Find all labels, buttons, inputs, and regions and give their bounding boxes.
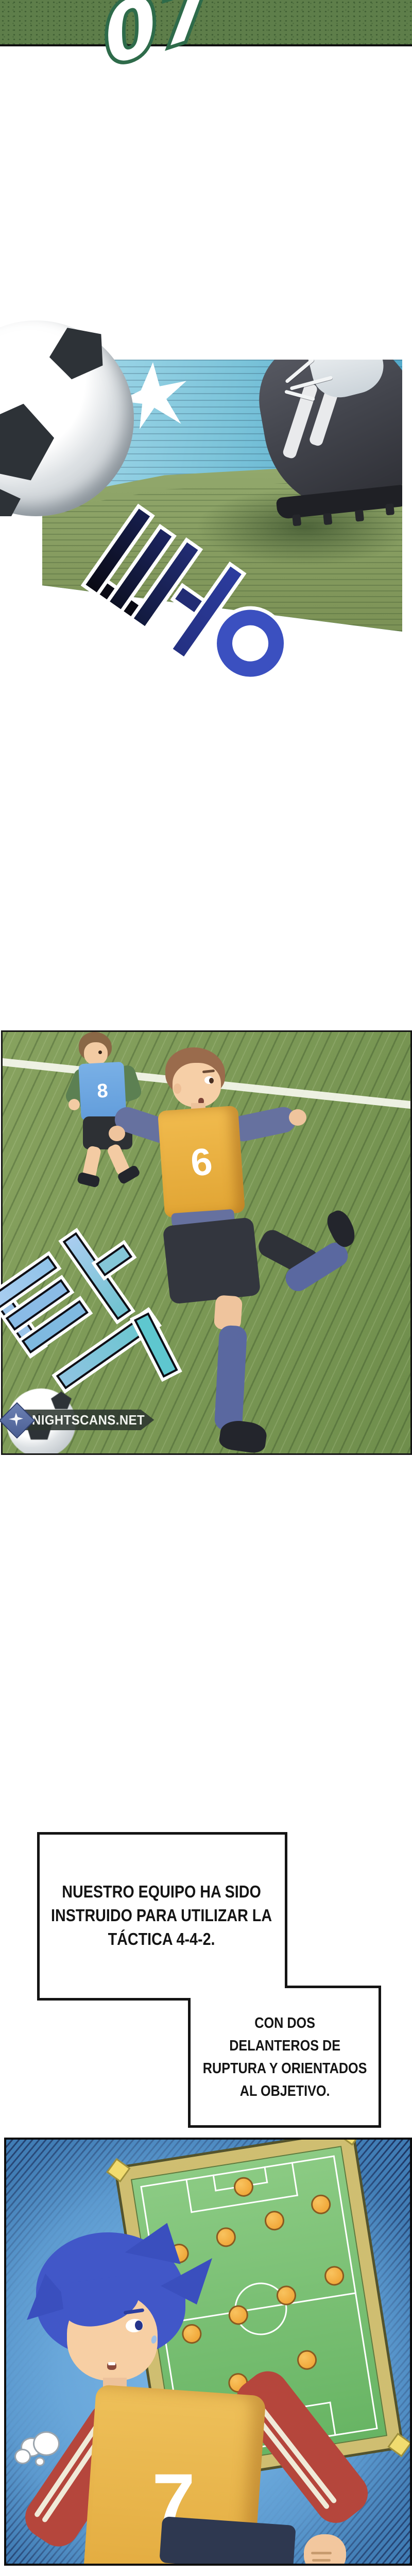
bubble-line: AL OBJETIVO. (203, 2080, 367, 2103)
ball-patch (41, 316, 113, 384)
runner6-ear (174, 1083, 181, 1094)
sigh-puff (35, 2457, 45, 2466)
runner6-right-hand (289, 1109, 306, 1126)
bubble-2: CON DOS DELANTEROS DE RUPTURA Y ORIENTAD… (189, 1987, 381, 2128)
runner6-back-shoe (323, 1207, 359, 1250)
bubble-line: RUPTURA Y ORIENTADOS (203, 2057, 367, 2080)
sfx-top-glyph: 07 07 (97, 0, 263, 102)
ball-patch (0, 484, 21, 516)
runner6-bib: 6 (158, 1106, 245, 1218)
runner6-eye (204, 1076, 214, 1084)
knuckle-line (312, 2559, 331, 2562)
bubble-line: NUESTRO EQUIPO HA SIDO (51, 1880, 272, 1904)
panel-tactics: 7 (4, 2138, 412, 2566)
sfx-stroke (96, 1244, 132, 1276)
sfx-top-fill: 07 (97, 0, 223, 83)
boy-shorts (159, 2516, 296, 2566)
bubble-1: NUESTRO EQUIPO HA SIDO INSTRUIDO PARA UT… (37, 1832, 286, 1999)
runner6-number: 6 (154, 1103, 248, 1221)
sigh-puff (33, 2431, 60, 2456)
knuckle-line (311, 2552, 332, 2554)
runner6-left-hand (109, 1126, 125, 1141)
cleat-stud (292, 514, 301, 527)
ball-patch (0, 395, 64, 488)
manhwa-page: 07 07 (0, 0, 412, 2576)
sfx-stroke (134, 1312, 178, 1378)
boy-mouth (107, 2362, 116, 2370)
watermark-banner: NIGHTSCANS.NET (4, 1408, 159, 1432)
tactics-boy: 7 (6, 2227, 367, 2564)
runner8-hand (68, 1099, 80, 1110)
cleat-stud (355, 510, 364, 522)
sfx-ring (204, 597, 297, 690)
bubble-line: CON DOS (203, 2012, 367, 2035)
runner8-shoe (77, 1172, 100, 1188)
cleat-stud (385, 503, 394, 516)
boy-teeth (108, 2362, 115, 2365)
bubble-line: INSTRUIDO PARA UTILIZAR LA (51, 1904, 272, 1927)
bubble-line: TÁCTICA 4-4-2. (51, 1927, 272, 1951)
runner6-shorts (163, 1217, 261, 1304)
watermark-text: NIGHTSCANS.NET (32, 1412, 145, 1428)
runner6-front-sock (214, 1325, 248, 1432)
bubble-line: DELANTEROS DE (203, 2035, 367, 2057)
boy-fist (304, 2534, 346, 2566)
cleat-stud (323, 513, 332, 526)
runner6-iris (209, 1078, 214, 1083)
runner6-front-shoe (218, 1418, 268, 1454)
sigh-puff (14, 2449, 31, 2464)
